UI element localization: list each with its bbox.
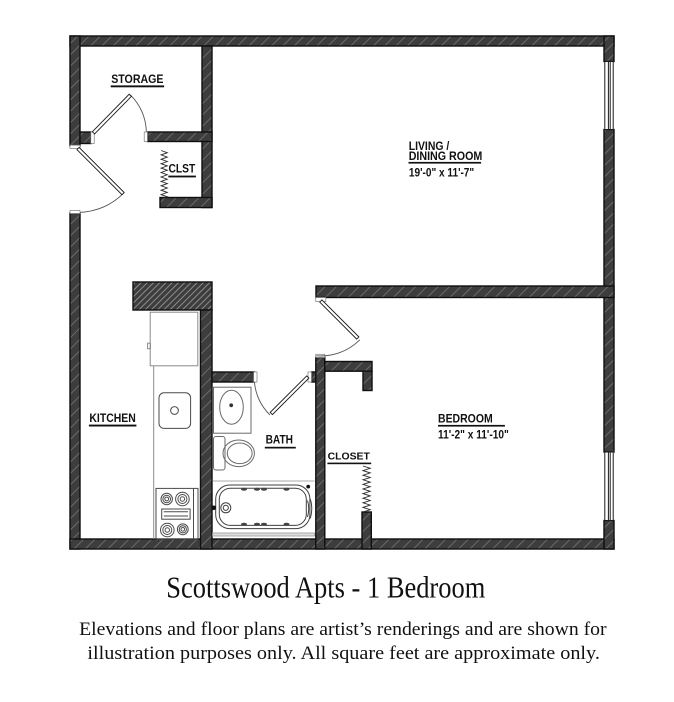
svg-text:BEDROOM: BEDROOM bbox=[438, 413, 493, 425]
svg-text:illustration purposes only. Al: illustration purposes only. All square f… bbox=[87, 643, 600, 664]
svg-text:19'-0" x 11'-7": 19'-0" x 11'-7" bbox=[409, 168, 474, 180]
svg-text:CLOSET: CLOSET bbox=[328, 451, 370, 462]
svg-text:BATH: BATH bbox=[266, 435, 293, 447]
svg-text:Scottswood Apts - 1 Bedroom: Scottswood Apts - 1 Bedroom bbox=[166, 569, 485, 604]
svg-text:KITCHEN: KITCHEN bbox=[89, 413, 135, 425]
svg-text:STORAGE: STORAGE bbox=[111, 74, 164, 86]
svg-text:11'-2" x 11'-10": 11'-2" x 11'-10" bbox=[438, 430, 509, 442]
svg-text:Elevations and floor plans are: Elevations and floor plans are artist’s … bbox=[79, 619, 607, 640]
svg-text:DINING ROOM: DINING ROOM bbox=[409, 151, 483, 163]
svg-text:CLST: CLST bbox=[169, 163, 196, 175]
